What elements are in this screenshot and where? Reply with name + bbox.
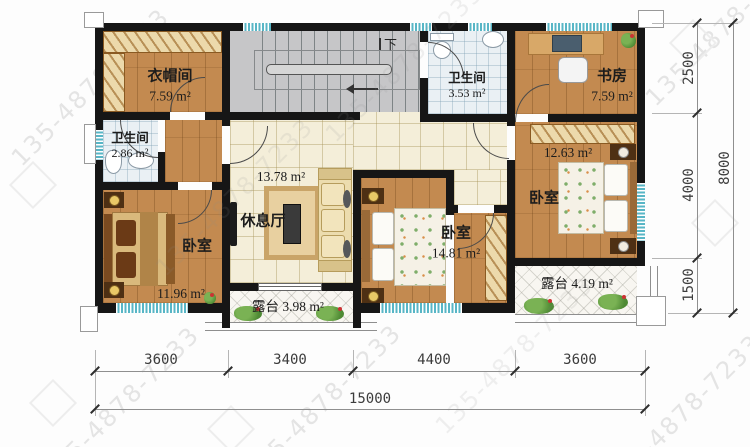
dim-value: 2500 <box>681 51 697 85</box>
dim-extension-line <box>668 313 738 314</box>
dim-extension-line <box>515 350 516 378</box>
room-area: 14.81 m² <box>432 244 480 262</box>
room-name: 卧室 <box>432 224 480 244</box>
sofa-armrest <box>318 260 352 272</box>
plant-icon <box>204 292 216 304</box>
stair-direction-line <box>352 88 378 90</box>
bed-footboard <box>166 214 175 284</box>
dim-value: 1500 <box>681 268 697 302</box>
nightstand-lamp <box>362 188 384 204</box>
corner-pillar <box>80 306 98 332</box>
room-label-lounge: 休息厅 <box>240 212 285 232</box>
floor-plan-canvas: 135-4878-7233 135-4878-7233 135-4878-723… <box>0 0 750 447</box>
plant-icon <box>524 298 554 314</box>
room-area: 7.59 m² <box>147 87 192 105</box>
wall-bath-small-right <box>158 112 165 120</box>
watermark-diamond <box>9 161 57 209</box>
nightstand-lamp <box>610 238 636 254</box>
dim-value: 3600 <box>144 352 178 368</box>
room-name: 卫生间 <box>448 70 486 86</box>
dim-value: 4400 <box>417 352 451 368</box>
wall-bath-top-bottom <box>420 114 515 122</box>
window-bedroom-right <box>637 183 645 241</box>
computer-monitor-icon <box>552 35 582 52</box>
window <box>410 23 432 31</box>
stairs-down-label: 下 <box>384 34 397 53</box>
room-name: 书房 <box>591 67 633 87</box>
room-label-bedroom-right: 卧室 <box>529 189 559 209</box>
window-bath-small <box>95 130 103 160</box>
window-study <box>546 23 612 31</box>
room-area-bedroom-left: 11.96 m² <box>157 285 205 303</box>
plant-icon <box>598 294 628 310</box>
room-area-lounge: 13.78 m² <box>257 168 305 186</box>
floor-vestibule <box>165 120 222 182</box>
watermark-diamond <box>29 379 77 427</box>
bedroom-right-wardrobe-hatch <box>530 124 635 144</box>
sofa-throw-pillow <box>343 190 351 208</box>
room-area-bedroom-right: 12.63 m² <box>544 144 592 162</box>
desk-chair <box>558 57 588 83</box>
watermark-text: 135-4878-7233 <box>238 319 407 447</box>
tv-stand <box>283 204 301 244</box>
toilet-tank <box>430 33 454 41</box>
bed-pillow <box>372 248 394 281</box>
wall-study-left <box>507 23 515 114</box>
wall-bedroom-center-top <box>446 205 458 213</box>
wall-bedroom-center-right <box>507 205 515 313</box>
nightstand-lamp <box>610 144 636 160</box>
wall-bedroom-right-bottom <box>507 258 645 266</box>
bed-headboard <box>104 214 112 284</box>
dim-line-bottom-total <box>95 409 645 410</box>
room-name: 卫生间 <box>111 130 149 146</box>
wall-terrace-center-side <box>353 291 361 328</box>
sofa-cushion <box>321 183 345 206</box>
nightstand-lamp <box>362 288 384 304</box>
stair-direction-arrow <box>346 84 354 94</box>
room-label-study: 书房 7.59 m² <box>591 67 633 104</box>
wall-vestibule-right <box>222 164 230 283</box>
sliding-door-track <box>259 286 321 287</box>
window <box>468 23 492 31</box>
stairs-down-tick <box>379 38 381 50</box>
wall-lounge-bottom <box>222 283 258 291</box>
terrace-right-label: 露台 4.19 m² <box>541 275 613 293</box>
nightstand-lamp <box>104 282 124 298</box>
room-label-cloakroom: 衣帽间 7.59 m² <box>147 67 192 104</box>
wall-study-bottom <box>548 114 645 122</box>
window-bedroom-left <box>116 303 188 313</box>
room-label-bath-top: 卫生间 3.53 m² <box>448 70 486 102</box>
sofa-cushion <box>321 235 345 258</box>
dim-total-height: 8000 <box>717 151 733 185</box>
dim-extension-line <box>353 350 354 378</box>
bed-pillow <box>116 252 136 278</box>
room-area: 3.53 m² <box>448 86 486 102</box>
bed-pillow <box>372 212 394 245</box>
watermark-text: 135-4878-7233 <box>598 329 750 447</box>
room-label-bath-small: 卫生间 2.86 m² <box>111 130 149 162</box>
dim-total-width: 15000 <box>349 391 391 407</box>
dim-line-bottom-segments <box>95 371 645 372</box>
wall-bedroom-left-top <box>212 182 222 190</box>
tv-icon <box>230 202 237 246</box>
watermark-diamond <box>691 199 739 247</box>
dim-extension-line <box>228 350 229 378</box>
corner-pillar <box>84 12 104 28</box>
terrace-pillar <box>636 296 666 326</box>
wall-bedroom-center-top <box>353 170 452 178</box>
terrace-sliding-door <box>258 283 322 291</box>
sofa-cushion <box>321 209 345 232</box>
sink-icon <box>482 31 504 48</box>
bed-pillow <box>604 164 628 196</box>
bed-headboard <box>362 210 370 282</box>
floor-corridor <box>353 112 420 170</box>
wall-outer-left <box>95 23 103 313</box>
window <box>243 23 271 31</box>
watermark-diamond <box>207 405 255 447</box>
cloakroom-closet-hatch <box>103 31 222 53</box>
bed-pillow <box>116 220 136 246</box>
dim-line-right-segments <box>697 23 698 313</box>
room-area: 2.86 m² <box>111 146 149 162</box>
dim-value: 3600 <box>563 352 597 368</box>
window-ledge <box>84 124 96 164</box>
cloakroom-closet-hatch <box>103 53 125 112</box>
room-area: 7.59 m² <box>591 87 633 105</box>
nightstand-lamp <box>104 192 124 208</box>
terrace-railing <box>515 314 656 323</box>
sofa-throw-pillow <box>343 240 351 258</box>
terrace-center-label: 露台 3.98 m² <box>252 298 324 316</box>
sofa-armrest <box>318 168 352 180</box>
room-name: 衣帽间 <box>147 67 192 87</box>
window-bedroom-center <box>380 303 462 313</box>
wall-stairs-bottom <box>230 112 360 120</box>
dim-line-right-total <box>733 23 734 313</box>
bed-pillow <box>604 200 628 232</box>
watermark-text: 135-4878-7233 <box>36 321 205 447</box>
wall-vestibule-right <box>222 112 230 126</box>
plant-icon <box>621 33 636 48</box>
bed-blanket <box>140 212 158 286</box>
wall-cloakroom-right <box>222 23 230 120</box>
stair-handrail <box>266 64 392 75</box>
wall-bedroom-left-top <box>95 182 178 190</box>
bed-duvet <box>558 162 604 234</box>
wall-terrace-center-side <box>222 291 230 328</box>
dim-value: 3400 <box>273 352 307 368</box>
floor-corridor <box>454 170 507 205</box>
corner-pillar <box>638 10 664 28</box>
room-label-bedroom-left: 卧室 <box>182 237 212 257</box>
wall-lounge-bottom <box>322 283 361 291</box>
terrace-railing <box>205 322 377 331</box>
dim-value: 4000 <box>681 168 697 202</box>
room-label-bedroom-center: 卧室 14.81 m² <box>432 224 480 261</box>
